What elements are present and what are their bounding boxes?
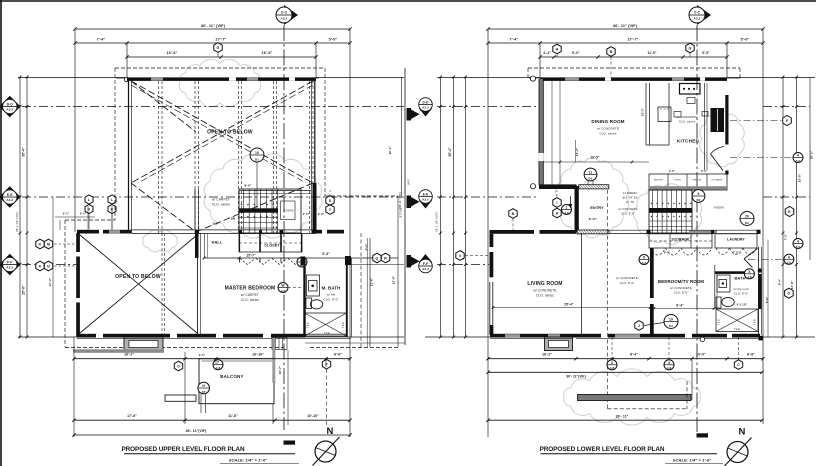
svg-text:LIVING ROOM: LIVING ROOM (527, 281, 562, 287)
svg-text:MASTER BEDROOM: MASTER BEDROOM (225, 286, 276, 292)
svg-text:4: 4 (797, 240, 799, 244)
svg-text:7'-4": 7'-4" (97, 37, 106, 41)
svg-text:11" TR: 11" TR (626, 200, 634, 204)
svg-text:10'-0": 10'-0" (696, 353, 706, 357)
svg-text:11'-6": 11'-6" (228, 414, 238, 418)
svg-text:w/ CONCRETE: w/ CONCRETE (597, 127, 619, 131)
svg-text:Q: Q (376, 256, 379, 260)
svg-text:11: 11 (589, 171, 593, 175)
svg-text:7'-2": 7'-2" (784, 233, 788, 240)
svg-text:PANTRY: PANTRY (654, 179, 664, 182)
svg-text:D: D (788, 291, 791, 295)
svg-text:A3.2: A3.2 (6, 108, 13, 112)
svg-text:A: A (556, 211, 559, 215)
svg-text:36'- 11" (VIF): 36'- 11" (VIF) (613, 24, 638, 28)
svg-text:TILE: TILE (753, 319, 757, 325)
svg-text:4: 4 (788, 255, 790, 259)
svg-text:ST: ST (202, 390, 206, 394)
svg-text:D-D: D-D (7, 102, 14, 106)
svg-text:OPEN TO BELOW: OPEN TO BELOW (115, 274, 161, 280)
svg-text:5'-5": 5'-5" (322, 252, 330, 256)
svg-text:8'-4": 8'-4" (676, 304, 684, 308)
svg-text:4'-11": 4'-11" (732, 252, 740, 255)
svg-text:KITCHEN: KITCHEN (677, 139, 700, 144)
svg-text:25'-4": 25'-4" (564, 303, 574, 307)
svg-text:8'-4": 8'-4" (778, 278, 782, 285)
svg-text:CLG: varies: CLG: varies (536, 294, 554, 298)
svg-text:A3.2: A3.2 (422, 198, 429, 202)
svg-text:CLG: varies: CLG: varies (241, 298, 259, 302)
svg-text:BATH: BATH (734, 276, 745, 281)
svg-text:C-C: C-C (281, 11, 288, 15)
svg-text:12'-8": 12'-8" (790, 280, 794, 289)
svg-text:16'-5": 16'-5" (262, 51, 273, 55)
svg-text:5.0: 5.0 (796, 159, 801, 163)
svg-text:CLG: 8'-0": CLG: 8'-0" (323, 298, 338, 302)
svg-text:11'-5": 11'-5" (647, 51, 656, 55)
svg-text:CLG: 8'-0": CLG: 8'-0" (620, 281, 635, 285)
svg-text:TILE: TILE (341, 322, 345, 328)
svg-text:A3.2: A3.2 (422, 106, 429, 110)
svg-text:8'-0": 8'-0" (572, 51, 580, 55)
svg-text:25'-6": 25'-6" (22, 285, 26, 295)
svg-text:B: B (512, 212, 515, 216)
svg-text:@ 7 3/4" EA: @ 7 3/4" EA (622, 196, 637, 200)
svg-text:19: 19 (669, 318, 673, 322)
svg-text:2'-6": 2'-6" (318, 212, 325, 216)
svg-text:K: K (39, 242, 42, 246)
svg-text:16'-6": 16'-6" (167, 51, 178, 55)
svg-text:5'-0": 5'-0" (741, 37, 750, 41)
svg-text:w/ CONCRETE: w/ CONCRETE (533, 289, 556, 293)
svg-text:4.8: 4.8 (747, 275, 752, 279)
svg-text:16'-2": 16'-2" (542, 353, 552, 357)
svg-text:F-F: F-F (423, 262, 428, 266)
svg-text:A3.2: A3.2 (281, 16, 288, 20)
svg-text:20: 20 (745, 215, 749, 219)
svg-text:2'-1": 2'-1" (63, 211, 70, 215)
svg-text:OPEN TO BELOW: OPEN TO BELOW (207, 130, 253, 136)
svg-text:PROPOSED UPPER LEVEL FLOOR PLA: PROPOSED UPPER LEVEL FLOOR PLAN (121, 446, 245, 453)
svg-text:K: K (39, 264, 42, 268)
svg-text:5.0: 5.0 (787, 261, 792, 265)
svg-text:15'-8": 15'-8" (798, 173, 802, 182)
svg-text:4'-6": 4'-6" (365, 243, 369, 250)
svg-text:8'-8": 8'-8" (747, 353, 755, 357)
svg-text:TILE: TILE (306, 322, 310, 328)
svg-text:A3.2: A3.2 (694, 16, 701, 20)
svg-text:SCALE: 1/4" = 1'-0": SCALE: 1/4" = 1'-0" (229, 457, 268, 462)
svg-text:ENTRY: ENTRY (590, 205, 604, 210)
svg-text:BALCONY: BALCONY (220, 374, 243, 379)
svg-text:F-F: F-F (7, 260, 12, 264)
svg-text:CLOSET: CLOSET (264, 244, 280, 248)
svg-text:2'-6": 2'-6" (669, 170, 676, 173)
svg-text:3: 3 (459, 254, 461, 258)
svg-text:STORAGE: STORAGE (711, 179, 723, 182)
svg-text:36'- 11"(VIF): 36'- 11"(VIF) (566, 375, 586, 379)
svg-text:w/ CONCRETE: w/ CONCRETE (670, 286, 692, 290)
svg-text:4.8: 4.8 (281, 289, 286, 293)
svg-text:B: B (610, 50, 613, 54)
svg-text:CLG: 8'-0": CLG: 8'-0" (734, 292, 748, 296)
svg-text:C: C (737, 363, 740, 367)
svg-text:35'-4": 35'-4" (22, 147, 26, 157)
svg-text:15'-8": 15'-8" (392, 275, 396, 284)
svg-text:CLG: varies: CLG: varies (679, 120, 696, 124)
svg-text:6'-2": 6'-2" (664, 252, 671, 255)
svg-text:20'-1": 20'-1" (388, 145, 392, 154)
svg-text:M: M (47, 242, 50, 246)
svg-text:(VIF): (VIF) (408, 179, 411, 185)
svg-text:TILE: TILE (717, 319, 721, 325)
svg-text:C-C: C-C (694, 11, 701, 15)
svg-text:17'-2": 17'-2" (48, 277, 52, 286)
svg-text:DN: DN (231, 217, 236, 221)
svg-text:7: 7 (217, 361, 219, 365)
svg-text:D1: D1 (255, 158, 259, 162)
svg-text:CLG: 8'-0": CLG: 8'-0" (674, 291, 689, 295)
svg-text:E-E: E-E (423, 192, 429, 196)
svg-text:5'-0": 5'-0" (329, 37, 338, 41)
svg-text:OVEN: OVEN (674, 180, 681, 182)
svg-text:A3.2: A3.2 (422, 267, 429, 271)
svg-text:11'-6": 11'-6" (370, 277, 374, 286)
svg-text:36'- 11" (VIF): 36'- 11" (VIF) (201, 24, 226, 28)
svg-text:4.8: 4.8 (610, 366, 615, 370)
svg-text:7'-4": 7'-4" (510, 37, 519, 41)
svg-text:16'-5": 16'-5" (641, 107, 645, 116)
svg-text:36'-11" (VIF): 36'-11" (VIF) (398, 192, 402, 208)
svg-text:25'-1 1/2" (VIF): 25'-1 1/2" (VIF) (15, 212, 19, 232)
svg-text:A3.2: A3.2 (6, 198, 13, 202)
svg-text:O: O (177, 364, 180, 368)
svg-text:3'-0": 3'-0" (701, 170, 708, 173)
svg-text:w/ CONCRETE: w/ CONCRETE (619, 207, 638, 211)
svg-text:2: 2 (611, 361, 613, 365)
svg-text:8'-6": 8'-6" (245, 184, 252, 188)
svg-text:I: I (556, 201, 557, 205)
svg-text:w/ CONCRETE: w/ CONCRETE (616, 276, 638, 280)
svg-text:1: 1 (566, 206, 568, 210)
svg-text:4.8: 4.8 (667, 366, 672, 370)
svg-text:CLG: 8'-0": CLG: 8'-0" (622, 212, 635, 216)
svg-text:10'-10": 10'-10" (307, 414, 319, 418)
svg-text:w/ CARPET: w/ CARPET (212, 198, 230, 202)
svg-text:LAUNDRY: LAUNDRY (727, 238, 745, 242)
svg-text:16'-1": 16'-1" (124, 353, 134, 357)
svg-text:D-D: D-D (423, 100, 430, 104)
svg-text:D1: D1 (589, 177, 593, 181)
svg-text:CLG: varies: CLG: varies (600, 132, 617, 136)
svg-text:8'-4": 8'-4" (630, 353, 638, 357)
svg-text:w/ CARPET: w/ CARPET (241, 293, 259, 297)
svg-text:D2: D2 (745, 221, 749, 225)
svg-text:15'-7": 15'-7" (246, 254, 256, 258)
svg-text:RISERS: RISERS (283, 209, 294, 213)
svg-text:16'-5": 16'-5" (590, 156, 600, 160)
svg-text:3.8: 3.8 (564, 211, 569, 215)
svg-text:5.0: 5.0 (642, 261, 647, 265)
svg-text:H: H (202, 384, 205, 388)
svg-text:5'-5": 5'-5" (213, 222, 220, 226)
svg-text:SCALE: 1/4" = 1'-0": SCALE: 1/4" = 1'-0" (673, 457, 712, 462)
svg-text:J: J (638, 324, 640, 328)
svg-text:36'- 11"(VIF): 36'- 11"(VIF) (186, 429, 207, 433)
svg-text:9: 9 (698, 192, 700, 196)
svg-text:17'-6": 17'-6" (127, 414, 137, 418)
svg-text:4.8: 4.8 (216, 366, 221, 370)
svg-text:w/ tile: w/ tile (327, 293, 336, 297)
svg-text:w/ CONCRETE: w/ CONCRETE (676, 115, 697, 119)
svg-text:R: R (384, 256, 387, 260)
svg-text:N: N (738, 427, 745, 438)
svg-text:8'-6": 8'-6" (334, 353, 342, 357)
svg-text:RISERS: RISERS (714, 206, 725, 210)
svg-text:E-E: E-E (7, 193, 13, 197)
svg-text:N: N (326, 426, 333, 437)
svg-text:5'-5": 5'-5" (80, 211, 87, 215)
svg-text:27'-7": 27'-7" (216, 37, 227, 41)
svg-text:N: N (47, 264, 50, 268)
svg-text:27'-7": 27'-7" (628, 37, 639, 41)
svg-text:8'-11": 8'-11" (589, 217, 598, 221)
svg-text:3'-7 1/2": 3'-7 1/2" (399, 206, 403, 218)
svg-text:4: 4 (797, 154, 799, 158)
svg-text:2'-6": 2'-6" (199, 353, 206, 357)
svg-text:6'-8": 6'-8" (765, 296, 769, 303)
svg-text:2'-6": 2'-6" (303, 212, 310, 216)
svg-text:10'-7": 10'-7" (278, 365, 282, 374)
svg-text:14 RISERS: 14 RISERS (623, 191, 637, 195)
svg-text:DINING ROOM: DINING ROOM (591, 119, 624, 124)
svg-text:8: 8 (643, 256, 645, 260)
svg-text:CLG: varies: CLG: varies (212, 203, 230, 207)
svg-text:10: 10 (255, 151, 259, 155)
svg-text:4'-1 1/2": 4'-1 1/2" (737, 303, 748, 307)
svg-text:H: H (556, 47, 559, 51)
svg-text:5.0: 5.0 (796, 245, 801, 249)
svg-text:A3.2: A3.2 (6, 266, 13, 270)
svg-text:36'- 11": 36'- 11" (616, 414, 629, 418)
svg-text:16'-10": 16'-10" (252, 353, 264, 357)
svg-text:5: 5 (748, 270, 750, 274)
svg-text:5'-5": 5'-5" (702, 51, 710, 55)
svg-text:w/ tile mud: w/ tile mud (734, 287, 749, 291)
svg-text:TILE: TILE (734, 328, 740, 331)
svg-text:20'-1": 20'-1" (810, 150, 814, 159)
svg-text:HALL: HALL (211, 240, 223, 245)
svg-text:35'-4": 35'-4" (448, 147, 452, 157)
svg-text:G: G (689, 46, 692, 50)
svg-text:BEDROOM/TV ROOM: BEDROOM/TV ROOM (658, 279, 704, 284)
svg-text:3: 3 (668, 361, 670, 365)
svg-text:G: G (217, 46, 220, 50)
svg-text:D2: D2 (669, 324, 673, 328)
svg-text:M. BATH: M. BATH (322, 286, 341, 291)
svg-text:4'-4": 4'-4" (543, 51, 551, 55)
svg-text:D2: D2 (697, 198, 701, 202)
svg-text:STORAGE: STORAGE (672, 238, 691, 242)
svg-text:PROPOSED LOWER LEVEL FLOOR PLA: PROPOSED LOWER LEVEL FLOOR PLAN (540, 446, 665, 453)
svg-text:FRIDGE: FRIDGE (693, 180, 702, 182)
svg-text:25'-1 1/2" (VIF): 25'-1 1/2" (VIF) (435, 212, 439, 232)
